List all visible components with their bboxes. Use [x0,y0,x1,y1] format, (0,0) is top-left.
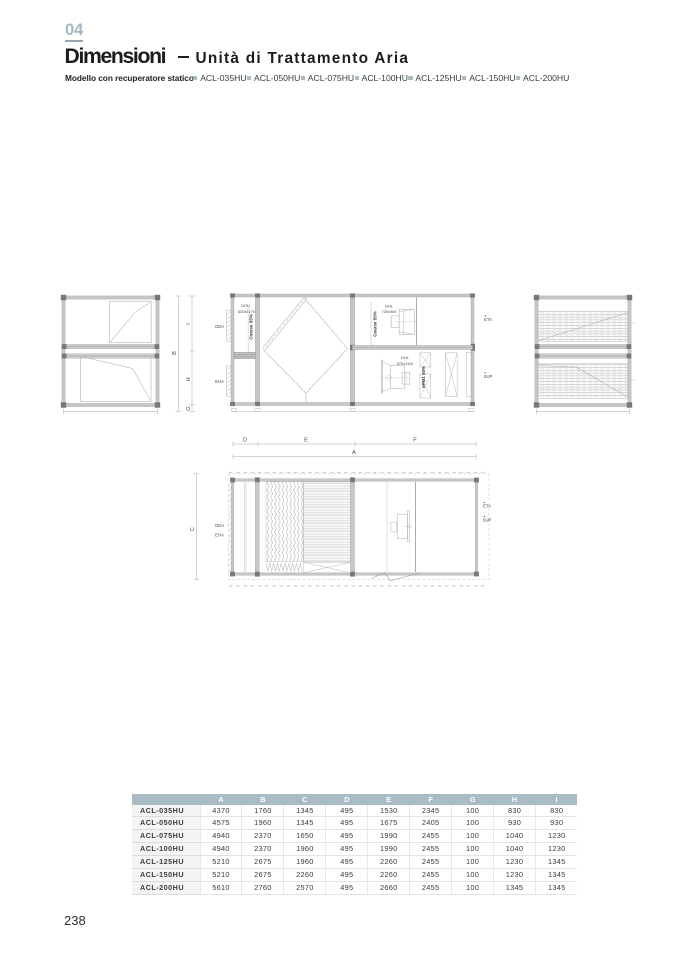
svg-text:620x1170: 620x1170 [238,309,256,314]
svg-text:570x1110: 570x1110 [397,361,414,366]
svg-text:D: D [243,438,247,444]
svg-text:E: E [304,438,308,444]
svg-text:F: F [413,438,417,444]
svg-text:C: C [190,527,196,531]
svg-text:G: G [186,406,192,410]
svg-text:A: A [352,450,356,456]
svg-text:720x400: 720x400 [382,309,398,314]
svg-text:DHL: DHL [385,304,394,309]
svg-text:ETA: ETA [483,504,491,509]
svg-text:I: I [186,323,192,325]
svg-text:SUP: SUP [483,518,492,523]
svg-text:ODA: ODA [215,523,224,528]
svg-text:ETA: ETA [484,317,492,322]
svg-text:Coarse 55%: Coarse 55% [373,311,378,337]
svg-text:H: H [186,377,192,381]
svg-text:DHL: DHL [401,355,410,360]
svg-text:SUP: SUP [484,374,493,379]
svg-text:EHA: EHA [215,533,224,538]
svg-text:ePM1 50%: ePM1 50% [421,366,426,388]
svg-text:ODA: ODA [215,324,224,329]
svg-text:Coarse 55%: Coarse 55% [248,314,253,340]
svg-text:EHA: EHA [215,379,224,384]
svg-text:B: B [172,351,178,355]
